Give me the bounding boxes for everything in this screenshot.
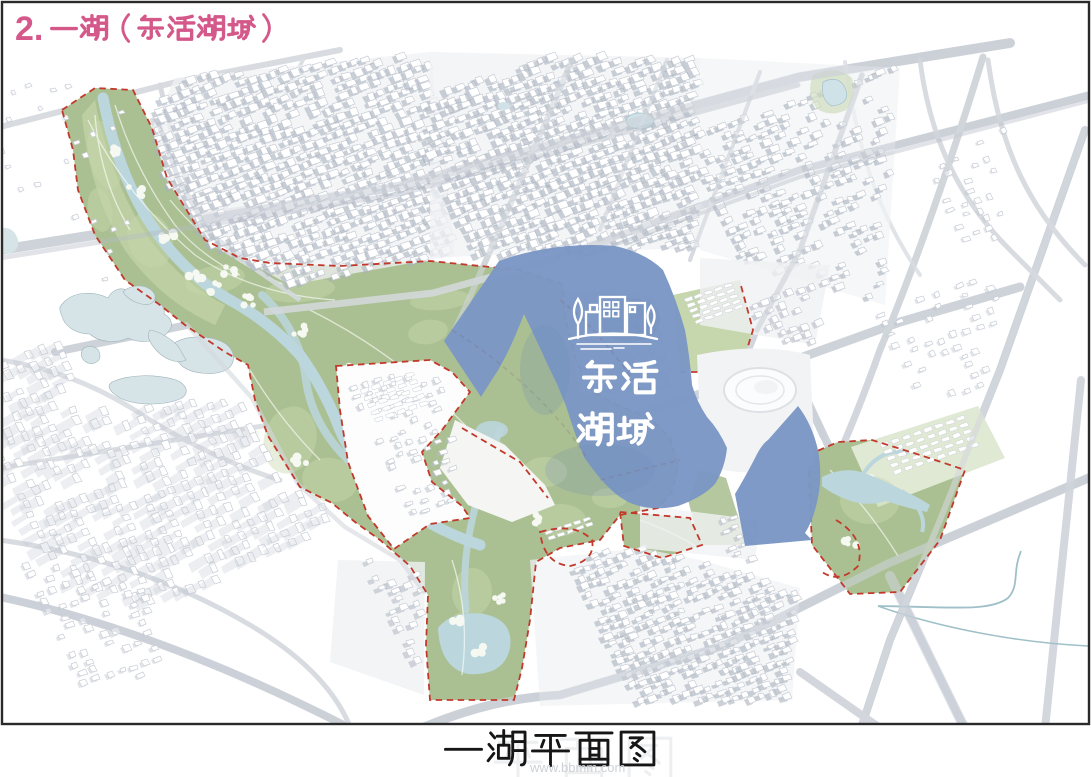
svg-text:2.: 2. [15,10,43,48]
svg-text:www.bbmm.com: www.bbmm.com [529,760,625,775]
